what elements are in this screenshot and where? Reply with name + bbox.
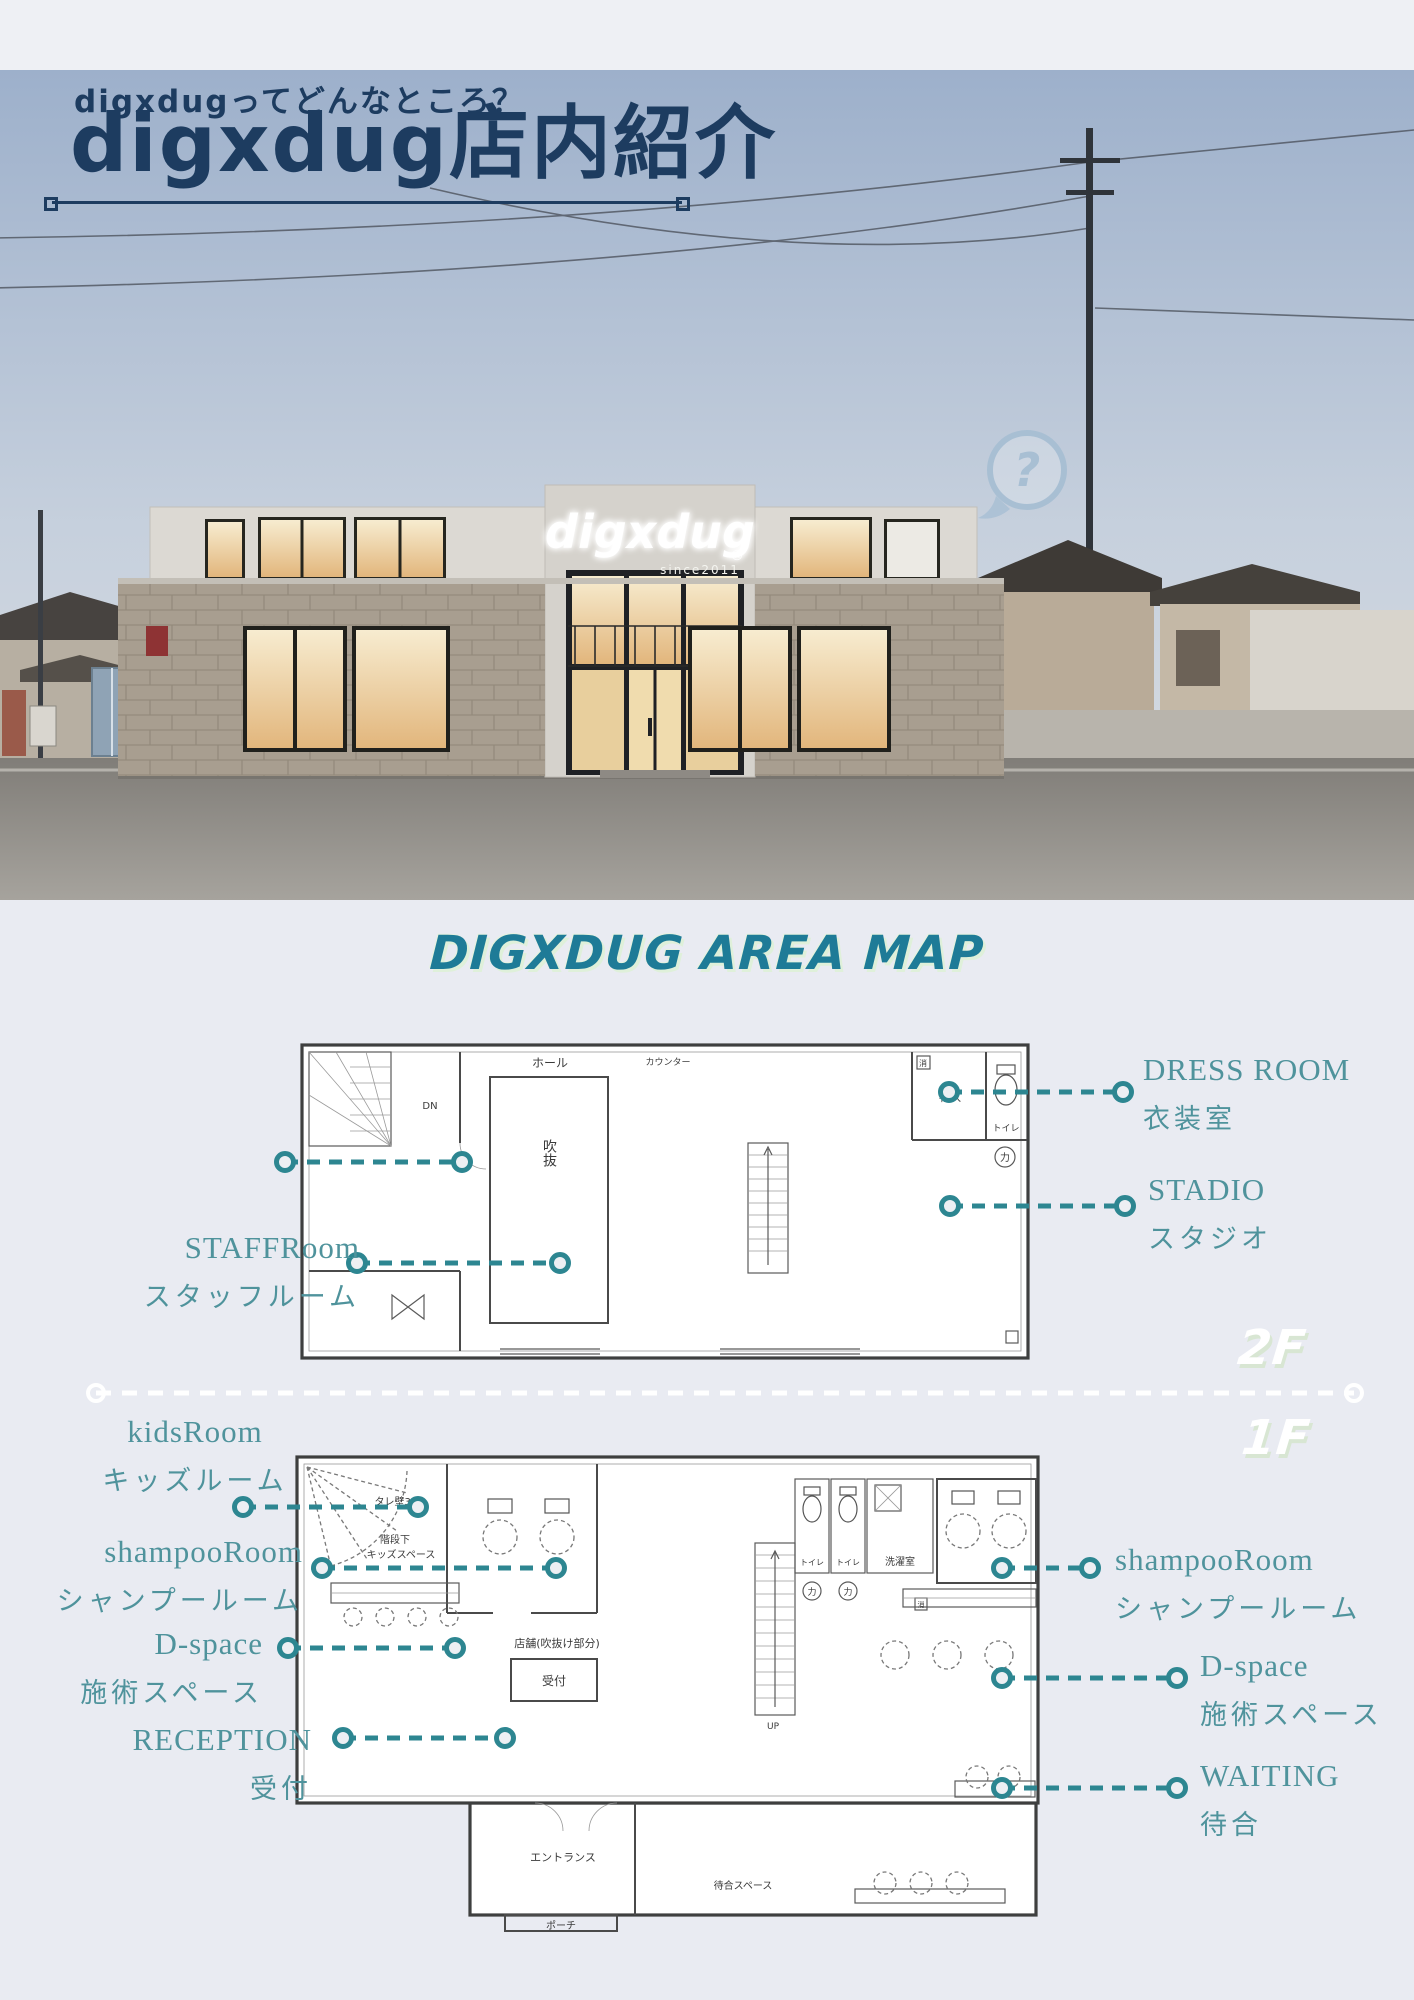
plan1f-sho-label: 消	[918, 1600, 925, 1609]
plan1f-riki2-label: 力	[843, 1586, 852, 1598]
plan1f-toilet2-label: トイレ	[836, 1558, 860, 1567]
label-dress-room-en: DRESS ROOM	[1143, 1052, 1350, 1088]
plan1f-laundry-label: 洗濯室	[885, 1555, 915, 1568]
label-dspace-right-en: D-space	[1200, 1648, 1383, 1684]
salon-building: digxdug ® since2011	[118, 485, 1004, 779]
stone-cap	[118, 578, 1004, 584]
red-sign	[146, 626, 168, 656]
rule-end-square-right	[676, 197, 690, 211]
label-dspace-right: D-space 施術スペース	[1200, 1648, 1383, 1732]
label-dspace-left-jp: 施術スペース	[40, 1671, 263, 1710]
label-dspace-left: D-space 施術スペース	[40, 1626, 263, 1710]
top-white-band	[0, 0, 1414, 70]
label-staff-room-jp: スタッフルーム	[60, 1275, 360, 1314]
plan1f-tare-label: タレ壁300	[374, 1495, 423, 1508]
floor-badge-1f: 1F	[1239, 1410, 1313, 1466]
rule-end-square-left	[44, 197, 58, 211]
plan2f-void-label: 吹抜	[541, 1139, 557, 1168]
plan1f-entrance-label: エントランス	[530, 1851, 596, 1864]
plan2f-toilet-label: トイレ	[992, 1124, 1019, 1134]
label-waiting-jp: 待合	[1200, 1803, 1340, 1842]
plan1f-waiting-label: 待合スペース	[714, 1879, 773, 1892]
floor-divider	[88, 1385, 1362, 1401]
plan1f-porch-label: ポーチ	[546, 1920, 576, 1932]
storefront-scene: digxdug ® since2011	[0, 70, 1414, 900]
label-waiting: WAITING 待合	[1200, 1758, 1340, 1842]
label-dress-room: DRESS ROOM 衣装室	[1143, 1052, 1350, 1136]
building-logo-since: since2011	[660, 563, 740, 577]
floor-plan-1f: タレ壁300 階段下 キッズスペース 店舗(吹抜け部分) 受付	[295, 1455, 1040, 1939]
plan1f-outer-wall	[297, 1457, 1038, 1803]
label-staff-room: STAFFRoom スタッフルーム	[60, 1230, 360, 1314]
label-dspace-right-jp: 施術スペース	[1200, 1693, 1383, 1732]
plan1f-toilet1-label: トイレ	[800, 1558, 824, 1567]
label-reception-jp: 受付	[70, 1767, 312, 1806]
plan2f-sho-label: 消	[919, 1058, 927, 1068]
label-shampoo-room-left: shampooRoom シャンプールーム	[48, 1534, 303, 1618]
label-staff-room-en: STAFFRoom	[60, 1230, 360, 1266]
page-title: digxdug店内紹介	[70, 102, 777, 186]
label-stadio-jp: スタジオ	[1148, 1217, 1272, 1256]
plan1f-under-label: 階段下	[380, 1533, 410, 1546]
plan2f-counter-label: カウンター	[645, 1057, 690, 1068]
plan1f-riki1-label: 力	[807, 1586, 816, 1598]
label-shampoo-room-left-jp: シャンプールーム	[48, 1579, 303, 1618]
title-underline	[52, 201, 682, 204]
label-stadio: STADIO スタジオ	[1148, 1172, 1272, 1256]
building-logo-reg: ®	[730, 548, 744, 564]
floor-badge-2f: 2F	[1235, 1320, 1309, 1376]
entry-step	[600, 770, 710, 778]
plan2f-storage-label: 物入	[939, 1090, 961, 1104]
label-reception-en: RECEPTION	[70, 1722, 312, 1758]
question-mark: ?	[1014, 443, 1041, 497]
plan1f-shop-label: 店舗(吹抜け部分)	[514, 1636, 600, 1650]
plan2f-outer-wall	[302, 1045, 1028, 1358]
plan1f-up-label: UP	[767, 1722, 780, 1732]
label-shampoo-room-right: shampooRoom シャンプールーム	[1115, 1542, 1361, 1626]
area-map-title: DIGXDUG AREA MAP	[0, 926, 1414, 981]
label-kids-room: kidsRoom キッズルーム	[75, 1414, 315, 1498]
flyer-page: digxdug ® since2011	[0, 0, 1414, 2000]
floor-plan-2f: DN ホール 吹抜 カウンター	[300, 1043, 1030, 1364]
label-shampoo-room-left-en: shampooRoom	[48, 1534, 303, 1570]
plan2f-hall-label: ホール	[532, 1056, 568, 1070]
plan2f-dn-label: DN	[422, 1101, 437, 1112]
label-shampoo-room-right-en: shampooRoom	[1115, 1542, 1361, 1578]
plan1f-reception-label: 受付	[542, 1674, 566, 1688]
label-shampoo-room-right-jp: シャンプールーム	[1115, 1587, 1361, 1626]
label-dress-room-jp: 衣装室	[1143, 1097, 1350, 1136]
plan1f-kids-label: キッズスペース	[367, 1548, 436, 1561]
label-waiting-en: WAITING	[1200, 1758, 1340, 1794]
label-reception: RECEPTION 受付	[70, 1722, 312, 1806]
label-kids-room-jp: キッズルーム	[75, 1459, 315, 1498]
building-logo-text: digxdug	[545, 505, 755, 559]
label-stadio-en: STADIO	[1148, 1172, 1272, 1208]
label-kids-room-en: kidsRoom	[75, 1414, 315, 1450]
storefront-photo: digxdug ® since2011	[0, 70, 1414, 900]
street	[0, 758, 1414, 900]
label-dspace-left-en: D-space	[40, 1626, 263, 1662]
plan2f-riki-label: 力	[1000, 1151, 1010, 1164]
